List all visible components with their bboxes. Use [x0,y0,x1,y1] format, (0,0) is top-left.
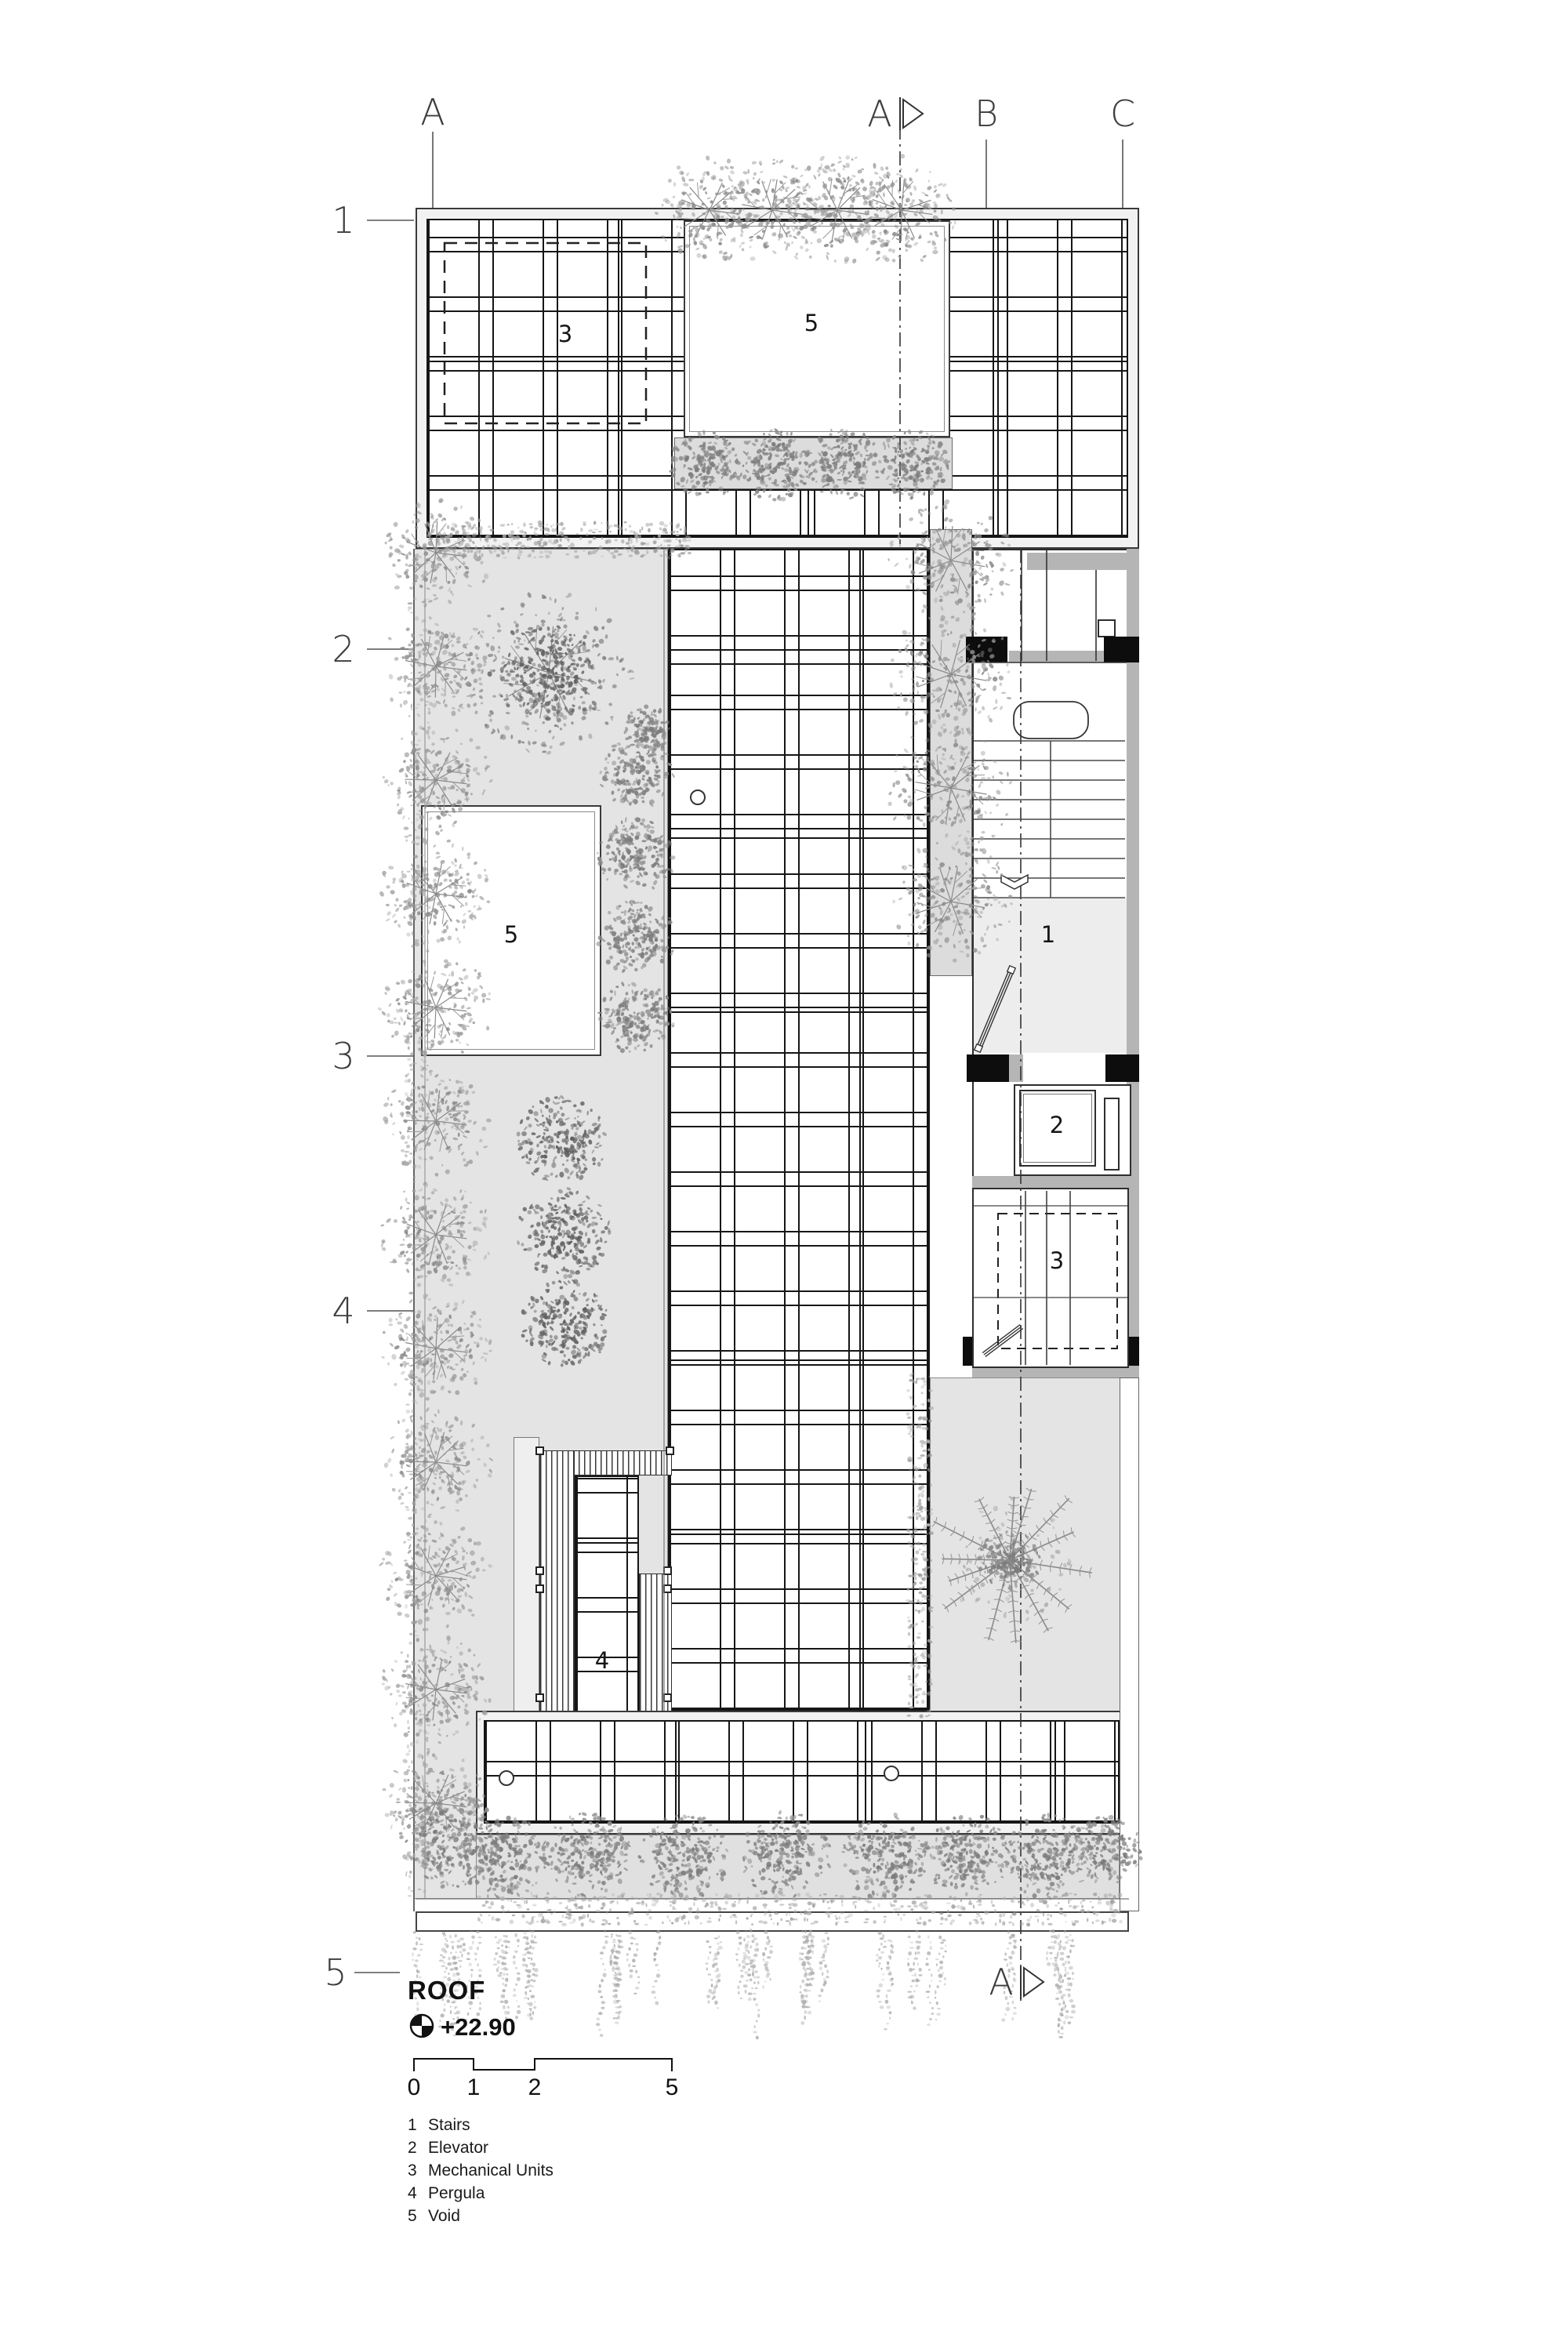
column [967,1054,1009,1082]
area-label-void-top: 5 [804,310,818,336]
right-planter [930,529,972,976]
pergola-post [663,1693,672,1702]
grid-row-label-2: 2 [332,628,354,670]
sheet-title: ROOF [408,1976,485,2005]
wall-band [972,1176,1127,1188]
legend-item-number: 3 [408,2161,428,2180]
area-label-elevator: 2 [1050,1112,1064,1138]
grid-row-label-4: 4 [332,1290,354,1332]
pergola-post [535,1566,544,1575]
legend-item-number: 1 [408,2116,428,2135]
section-marker-bottom-label: A [989,1961,1013,2003]
area-label-void-left: 5 [504,921,518,948]
legend-item: 2 Elevator [408,2136,554,2159]
grid-row-label-3: 3 [332,1035,354,1077]
legend: 1 Stairs 2 Elevator 3 Mechanical Units 4… [408,2114,554,2227]
pergola-post [666,1446,674,1455]
site-bottom-parapet [416,1911,1129,1932]
section-flag-icon [1024,1968,1044,1996]
grid-column-label-a: A [420,91,445,133]
legend-item-number: 2 [408,2139,428,2158]
scale-tick-2: 2 [528,2074,542,2101]
bottom-planter-band [476,1835,1120,1899]
pergola-post [535,1693,544,1702]
area-label-mechanical-top: 3 [558,321,572,347]
legend-item-label: Elevator [428,2139,488,2158]
grid-column-label-b: B [975,93,998,135]
legend-item: 1 Stairs [408,2114,554,2136]
scale-tick-1: 1 [467,2074,481,2101]
scale-tick-5: 5 [666,2074,679,2101]
scale-bar [414,2059,672,2071]
legend-item: 4 Pergula [408,2182,554,2205]
area-label-pergola: 4 [595,1647,609,1674]
central-roof-grid [668,549,930,1711]
bottom-roof-grid [484,1720,1120,1824]
section-marker-top-label: A [867,93,891,135]
level-benchmark-icon [411,2015,433,2037]
site-right-parapet [1120,1377,1139,1911]
column [1105,1054,1139,1082]
mechanical-room [972,1188,1129,1368]
pergola-west-wall-band [514,1437,539,1719]
legend-item-label: Void [428,2207,460,2226]
hanging-vine-icon [596,1929,662,2037]
elevator-counterweight [1104,1098,1120,1171]
wall-band [1009,1054,1023,1082]
legend-item-label: Mechanical Units [428,2161,554,2180]
grid-column-label-c: C [1110,93,1135,135]
pergola-slats-left [539,1450,575,1719]
level-value: +22.90 [441,2013,516,2042]
top-planter [674,437,953,489]
small-room [1098,619,1116,637]
pergola-post [663,1566,672,1575]
grid-row-label-1: 1 [332,199,354,241]
legend-item: 3 Mechanical Units [408,2159,554,2182]
hanging-vine-icon [764,1929,829,2025]
legend-item-number: 4 [408,2184,428,2203]
legend-item-label: Stairs [428,2116,470,2135]
column [966,637,1007,662]
legend-item-label: Pergula [428,2184,485,2203]
pergola-post [535,1446,544,1455]
core-top-wall [1027,553,1127,570]
column [1104,637,1139,662]
grid-row-label-5: 5 [324,1951,347,1994]
pergola-inner-grid [575,1475,639,1719]
legend-item-number: 5 [408,2207,428,2226]
hanging-vine-icon [706,1929,771,2040]
pergola-post [663,1584,672,1593]
legend-item: 5 Void [408,2205,554,2227]
area-label-mechanical-core: 3 [1050,1247,1064,1274]
wall-band [1009,651,1104,662]
hanging-vine-icon [876,1930,947,2031]
roof-plan-sheet: A A B C 1 2 3 4 5 A 3 5 5 1 2 3 4 ROOF +… [0,0,1568,2352]
area-label-stairs: 1 [1041,921,1055,948]
pergola-post [535,1584,544,1593]
section-flag-icon [903,100,923,128]
right-terrace [930,1377,1129,1719]
scale-tick-0: 0 [408,2074,421,2101]
